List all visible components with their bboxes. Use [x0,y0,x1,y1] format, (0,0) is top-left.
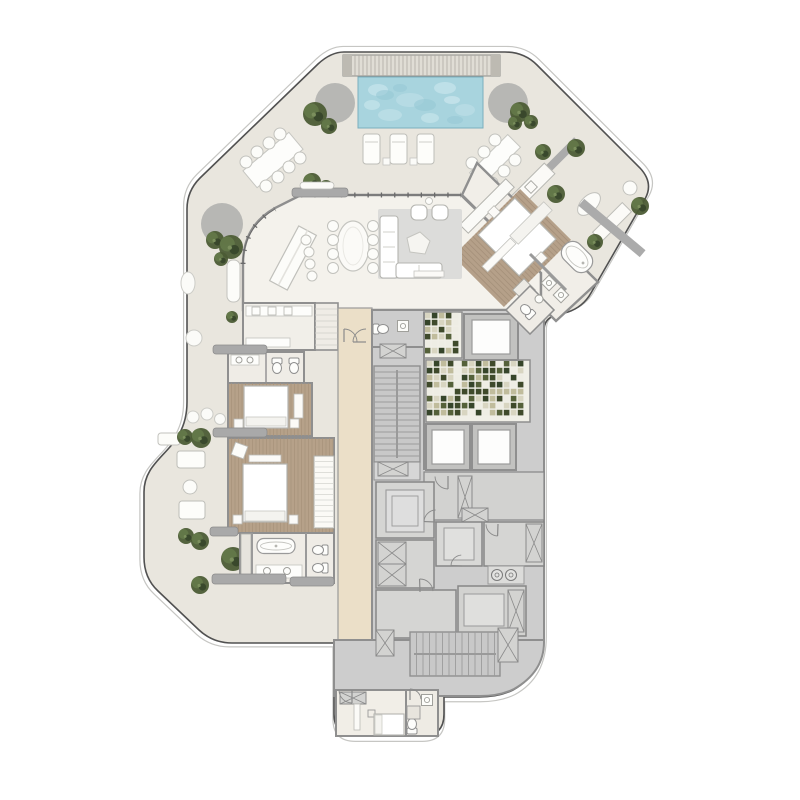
green-wall-planting-cell [425,348,431,354]
green-wall-planting-cell [453,341,459,347]
media-console [414,271,444,277]
toilet-group [407,719,417,735]
green-wall-planting-cell [441,396,447,402]
balcony-bench [300,182,334,189]
bidet-group [313,563,329,573]
green-wall-planting-cell [518,403,524,409]
pool-water-highlight [434,82,456,94]
green-wall-planting-cell [490,368,496,374]
green-wall-planting-cell [469,361,475,367]
green-wall-planting-cell [446,341,452,347]
green-wall-planting-cell [483,389,489,395]
sink-basin [535,295,543,303]
green-wall-planting-cell [448,375,454,381]
wall-band [210,527,238,536]
tree-leaf [183,436,186,439]
green-wall-planting-cell [439,348,445,354]
green-wall-planting-cell [453,320,459,326]
toilet-bowl [313,546,324,555]
green-wall-planting-cell [511,361,517,367]
green-wall-planting-cell [497,410,503,416]
elevator-car [478,430,510,464]
green-wall-planting-cell [476,403,482,409]
green-wall-planting-cell [497,361,503,367]
green-wall-planting-cell [469,382,475,388]
sun-lounger [390,134,407,164]
green-wall-planting-cell [446,327,452,333]
green-wall-planting-cell [511,396,517,402]
dining-table [337,221,369,271]
terrace-dining-chair [272,171,284,183]
green-wall-planting-cell [469,375,475,381]
green-wall-planting-cell [490,382,496,388]
pool-water-shadow [376,90,394,100]
dining-chair [368,249,379,260]
green-wall-planting-cell [427,389,433,395]
toilet-group [373,324,389,334]
floor-plan-svg [0,0,800,800]
terrace-dining-chair [478,146,490,158]
green-wall-planting-cell [439,320,445,326]
green-wall-planting-cell [504,410,510,416]
green-wall-planting-cell [518,389,524,395]
green-wall-planting-cell [504,382,510,388]
green-wall-planting-cell [427,361,433,367]
green-wall-planting-cell [511,375,517,381]
green-wall-planting-cell [455,368,461,374]
green-wall-planting-cell [455,375,461,381]
tree-leaf [529,121,532,124]
pool-water-highlight [378,109,402,121]
green-wall-planting-cell [497,403,503,409]
green-wall-planting-cell [448,410,454,416]
pool-water-highlight [455,104,475,116]
green-wall-planting-cell [441,368,447,374]
green-wall-planting-cell [483,410,489,416]
terrace-pouf [187,411,199,423]
bathtub-master-drain [275,545,278,548]
terrace-dining-chair [274,128,286,140]
bed-2-bench [249,455,281,462]
green-wall-planting-cell [427,396,433,402]
green-wall-planting-cell [448,368,454,374]
terrace-pouf [181,272,195,294]
green-wall-planting-cell [455,382,461,388]
green-wall-planting-cell [483,382,489,388]
bed-2-pillows [245,511,285,521]
elevator-car [432,430,464,464]
green-wall-planting-cell [448,361,454,367]
green-wall-planting-cell [425,313,431,319]
tree-leaf [573,147,576,150]
dining-chair [328,235,339,246]
green-wall-planting-cell [504,403,510,409]
green-wall-planting-cell [504,396,510,402]
toilet-bowl [378,325,389,334]
green-wall-planting-cell [455,396,461,402]
green-wall-planting-cell [511,382,517,388]
green-wall-planting-cell [504,375,510,381]
green-wall-planting-cell [453,327,459,333]
terrace-dining-chair [260,180,272,192]
pool-water-highlight [444,96,460,104]
bar-stool [305,259,315,269]
pool-water-highlight [364,100,380,110]
green-wall-planting-cell [511,368,517,374]
armchair [411,205,427,220]
green-wall-planting-cell [432,348,438,354]
green-wall-planting-cell [446,348,452,354]
tree-leaf [228,245,232,249]
green-wall-planting-cell [511,403,517,409]
bar-stool [307,271,317,281]
tree-leaf [197,584,200,587]
terrace-dining-chair [283,161,295,173]
nightstand [233,515,242,524]
green-wall-planting-cell [462,389,468,395]
green-wall-planting-cell [504,389,510,395]
bar-stool [304,247,314,257]
green-wall-planting-cell [432,334,438,340]
green-wall-planting-cell [462,368,468,374]
terrace-bench [227,260,240,302]
dining-chair [328,249,339,260]
tree-leaf [198,437,202,441]
green-wall-planting-cell [518,396,524,402]
green-wall-planting-cell [462,382,468,388]
green-wall-planting-cell [462,361,468,367]
green-wall-planting-cell [434,403,440,409]
green-wall-planting-cell [441,389,447,395]
nightstand [234,419,243,428]
green-wall-planting-cell [511,389,517,395]
terrace-dining-chair [263,137,275,149]
kitchen-counter [246,306,312,316]
green-wall-planting-cell [439,313,445,319]
green-wall-planting-cell [448,396,454,402]
green-wall-planting-cell [453,334,459,340]
tree-leaf [553,193,556,196]
bidet-bowl [313,564,324,573]
green-wall-planting-cell [434,389,440,395]
powder-sink [398,321,409,332]
green-wall-planting-cell [425,341,431,347]
green-wall-planting-cell [434,410,440,416]
green-wall-planting-cell [518,375,524,381]
green-wall-planting-cell [490,403,496,409]
green-wall-planting-cell [476,361,482,367]
green-wall-planting-cell [441,382,447,388]
lounger-side-table [183,480,197,494]
green-wall-planting-cell [446,334,452,340]
wall-band [213,428,267,437]
green-wall-planting-cell [448,403,454,409]
green-wall-planting-cell [434,361,440,367]
elevator-car [472,320,510,354]
terrace-dining-chair [294,152,306,164]
green-wall-planting-cell [427,410,433,416]
vanity [231,355,259,365]
green-wall-planting-cell [425,334,431,340]
green-wall-planting-cell [441,410,447,416]
dining-chair [328,221,339,232]
green-wall-planting-cell [446,313,452,319]
green-wall-planting-cell [490,375,496,381]
bidet-bowl [290,363,299,374]
bar-stool [301,235,311,245]
green-wall-planting-cell [462,410,468,416]
green-wall-planting-cell [432,313,438,319]
green-wall-planting-cell [434,368,440,374]
green-wall-planting-cell [490,361,496,367]
green-wall-planting-cell [497,382,503,388]
service-equipment [464,594,504,626]
side-table [410,158,417,165]
green-wall-planting-cell [462,396,468,402]
green-wall-planting-cell [497,368,503,374]
green-wall-planting-cell [497,396,503,402]
terrace-dining-chair [489,134,501,146]
green-wall-planting-cell [441,375,447,381]
green-wall-planting-cell [427,368,433,374]
green-wall-planting-cell [427,382,433,388]
pool-deck-end-left [343,55,352,76]
wall-band [290,577,334,586]
nightstand [289,515,298,524]
green-wall-planting-cell [483,361,489,367]
side-table [426,198,433,205]
terrace-pouf [201,408,213,420]
green-wall-planting-cell [462,375,468,381]
green-wall-planting-cell [490,396,496,402]
terrace-pouf [215,414,226,425]
green-wall-planting-cell [432,341,438,347]
green-wall-planting-cell [446,320,452,326]
pantry [315,303,338,350]
green-wall-planting-cell [518,382,524,388]
toilet-bowl [273,363,282,374]
green-wall-planting-cell [490,410,496,416]
green-wall-planting-cell [504,368,510,374]
tree-leaf [212,239,215,242]
pool-water-shadow [447,116,463,124]
corner-side-table [623,181,637,195]
green-wall-planting-cell [439,341,445,347]
terrace-lounger [179,501,205,519]
bedroom-1-bench [294,394,303,418]
tree-leaf [593,241,596,244]
green-wall-planting-cell [518,410,524,416]
toilet-group [313,545,329,555]
floor-plan-page [0,0,800,800]
armchair [432,205,448,220]
green-wall-planting-cell [469,410,475,416]
tree-leaf [513,122,516,125]
green-wall-planting-cell [441,361,447,367]
staff-sink [422,695,433,706]
green-wall-planting-cell [504,361,510,367]
green-wall-planting-cell [453,348,459,354]
toilet-bowl [408,719,417,730]
terrace-dining-chair [240,156,252,168]
bed-1-pillows [246,417,286,426]
green-wall-planting-cell [434,375,440,381]
wall-band [212,574,286,584]
green-wall-planting-cell [469,389,475,395]
tree-leaf [197,540,200,543]
tree-leaf [230,557,234,561]
green-wall-planting-cell [432,327,438,333]
tree-leaf [517,111,521,115]
green-wall-planting-cell [469,368,475,374]
tree-leaf [230,316,232,318]
green-wall-planting-cell [483,403,489,409]
dining-chair [368,221,379,232]
green-wall-planting-cell [425,320,431,326]
green-wall-planting-cell [497,375,503,381]
green-wall-planting-cell [425,327,431,333]
dining-chair [328,263,339,274]
towel-table [158,433,180,445]
tree-leaf [637,205,640,208]
green-wall-planting-cell [469,403,475,409]
terrace-dining-chair [498,165,510,177]
green-wall-planting-cell [427,403,433,409]
sun-lounger [417,134,434,164]
dining-chair [368,263,379,274]
terrace-lounger [177,451,205,468]
green-wall-planting-cell [476,389,482,395]
pool-deck-end-right [491,55,500,76]
green-wall-planting-cell [434,382,440,388]
green-wall-planting-cell [432,320,438,326]
green-wall-planting-cell [462,403,468,409]
wall-band [213,345,267,354]
terrace-dining-chair [251,146,263,158]
pool-deck [343,55,500,76]
tree-leaf [327,125,330,128]
green-wall-planting-cell [427,375,433,381]
terrace-pouf [186,330,202,346]
tree-leaf [184,535,187,538]
green-wall-planting-cell [476,368,482,374]
tree-leaf [312,112,316,116]
green-wall-planting-cell [518,361,524,367]
green-wall-planting-cell [439,327,445,333]
green-wall-planting-cell [439,334,445,340]
green-wall-planting-cell [455,403,461,409]
green-wall-planting-cell [453,313,459,319]
sun-lounger [363,134,380,164]
washer [492,570,503,581]
green-wall-planting-cell [511,410,517,416]
dryer [506,570,517,581]
green-wall-planting-cell [434,396,440,402]
corridor [338,308,372,696]
green-wall-planting-cell [455,361,461,367]
pool-water-shadow [393,84,407,92]
shower [407,706,420,719]
green-wall-planting-cell [518,368,524,374]
green-wall-planting-cell [483,396,489,402]
dining-chair [368,235,379,246]
pool-water-shadow [414,99,436,111]
green-wall-planting-cell [476,410,482,416]
green-wall-planting-cell [448,382,454,388]
green-wall-planting-cell [483,368,489,374]
green-wall-planting-cell [448,389,454,395]
green-wall-planting-cell [476,375,482,381]
tree-leaf [219,258,222,261]
staff-bed-pillow [375,715,382,734]
staff-desk [354,704,360,730]
green-wall-planting-cell [497,389,503,395]
green-wall-planting-cell [490,389,496,395]
terrace-dining-chair [509,154,521,166]
green-wall-planting-cell [476,382,482,388]
tree-leaf [541,151,544,154]
pool-water-highlight [421,113,439,123]
green-wall-planting-cell [441,403,447,409]
side-table [383,158,390,165]
green-wall-planting-cell [455,389,461,395]
nightstand [290,419,299,428]
green-wall-planting-cell [455,410,461,416]
green-wall-planting-cell [483,375,489,381]
green-wall-planting-cell [476,396,482,402]
green-wall-planting-cell [469,396,475,402]
